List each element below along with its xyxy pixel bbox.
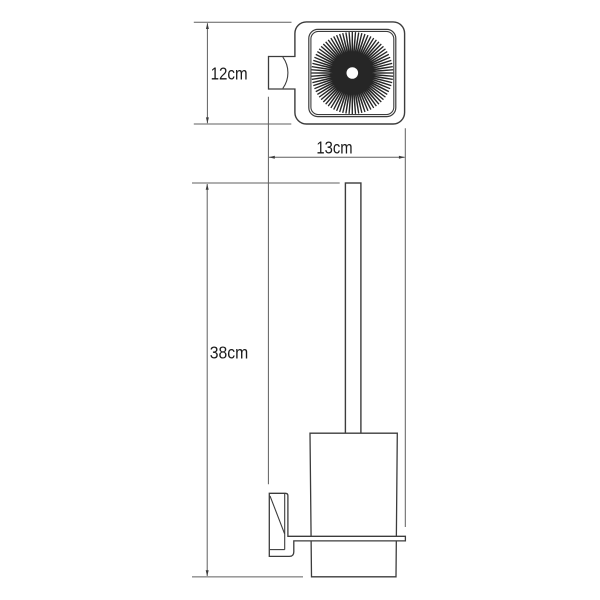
svg-text:12cm: 12cm — [211, 63, 248, 83]
svg-text:38cm: 38cm — [210, 343, 249, 363]
svg-text:13cm: 13cm — [316, 138, 352, 158]
